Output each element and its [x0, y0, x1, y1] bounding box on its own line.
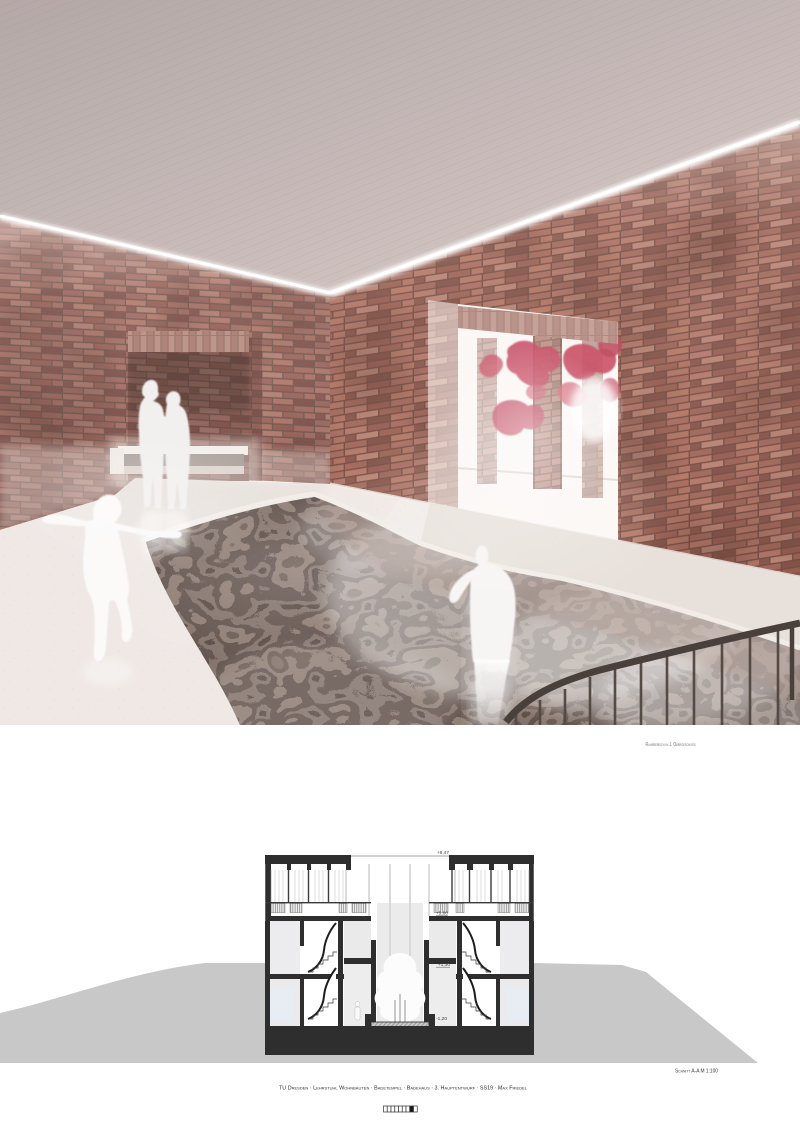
svg-text:-1,20: -1,20 [436, 1016, 447, 1022]
svg-text:Ruhebereich im 1. Obergeschoss: Ruhebereich im 1. Obergeschoss [646, 742, 696, 748]
svg-text:Schnitt A-A M 1:100: Schnitt A-A M 1:100 [675, 1069, 719, 1075]
svg-text:TU Dresden · Lehrstuhl Wohnbau: TU Dresden · Lehrstuhl Wohnbauten · Bade… [279, 1086, 528, 1092]
svg-text:+8,47: +8,47 [437, 850, 449, 856]
